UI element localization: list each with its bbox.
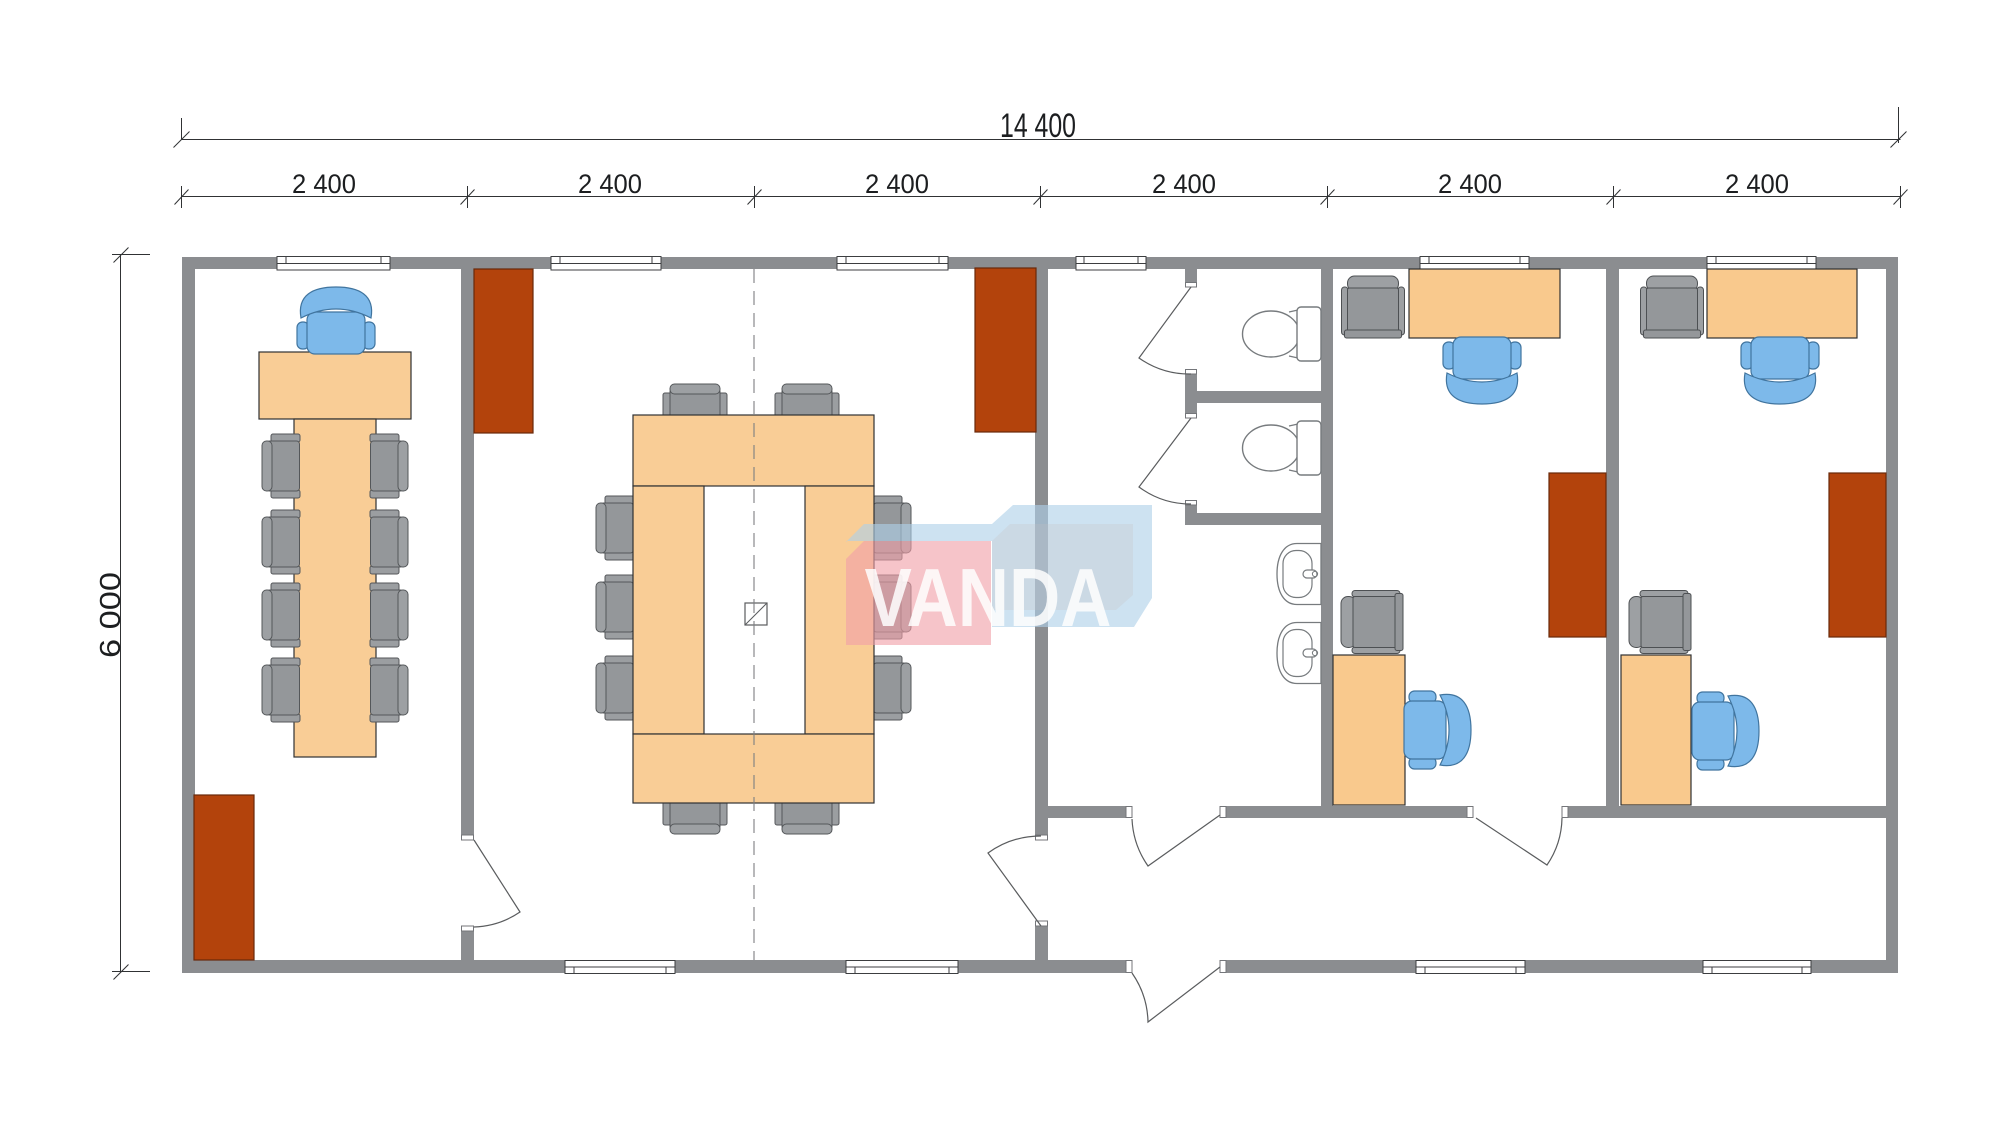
svg-text:2 400: 2 400: [292, 169, 356, 199]
svg-text:2 400: 2 400: [1438, 169, 1502, 199]
svg-text:2 400: 2 400: [578, 169, 642, 199]
svg-text:2 400: 2 400: [865, 169, 929, 199]
svg-text:6 000: 6 000: [95, 572, 127, 658]
svg-text:VANDA: VANDA: [865, 551, 1112, 644]
svg-text:2 400: 2 400: [1725, 169, 1789, 199]
svg-text:2 400: 2 400: [1152, 169, 1216, 199]
svg-text:14 400: 14 400: [1000, 107, 1076, 145]
